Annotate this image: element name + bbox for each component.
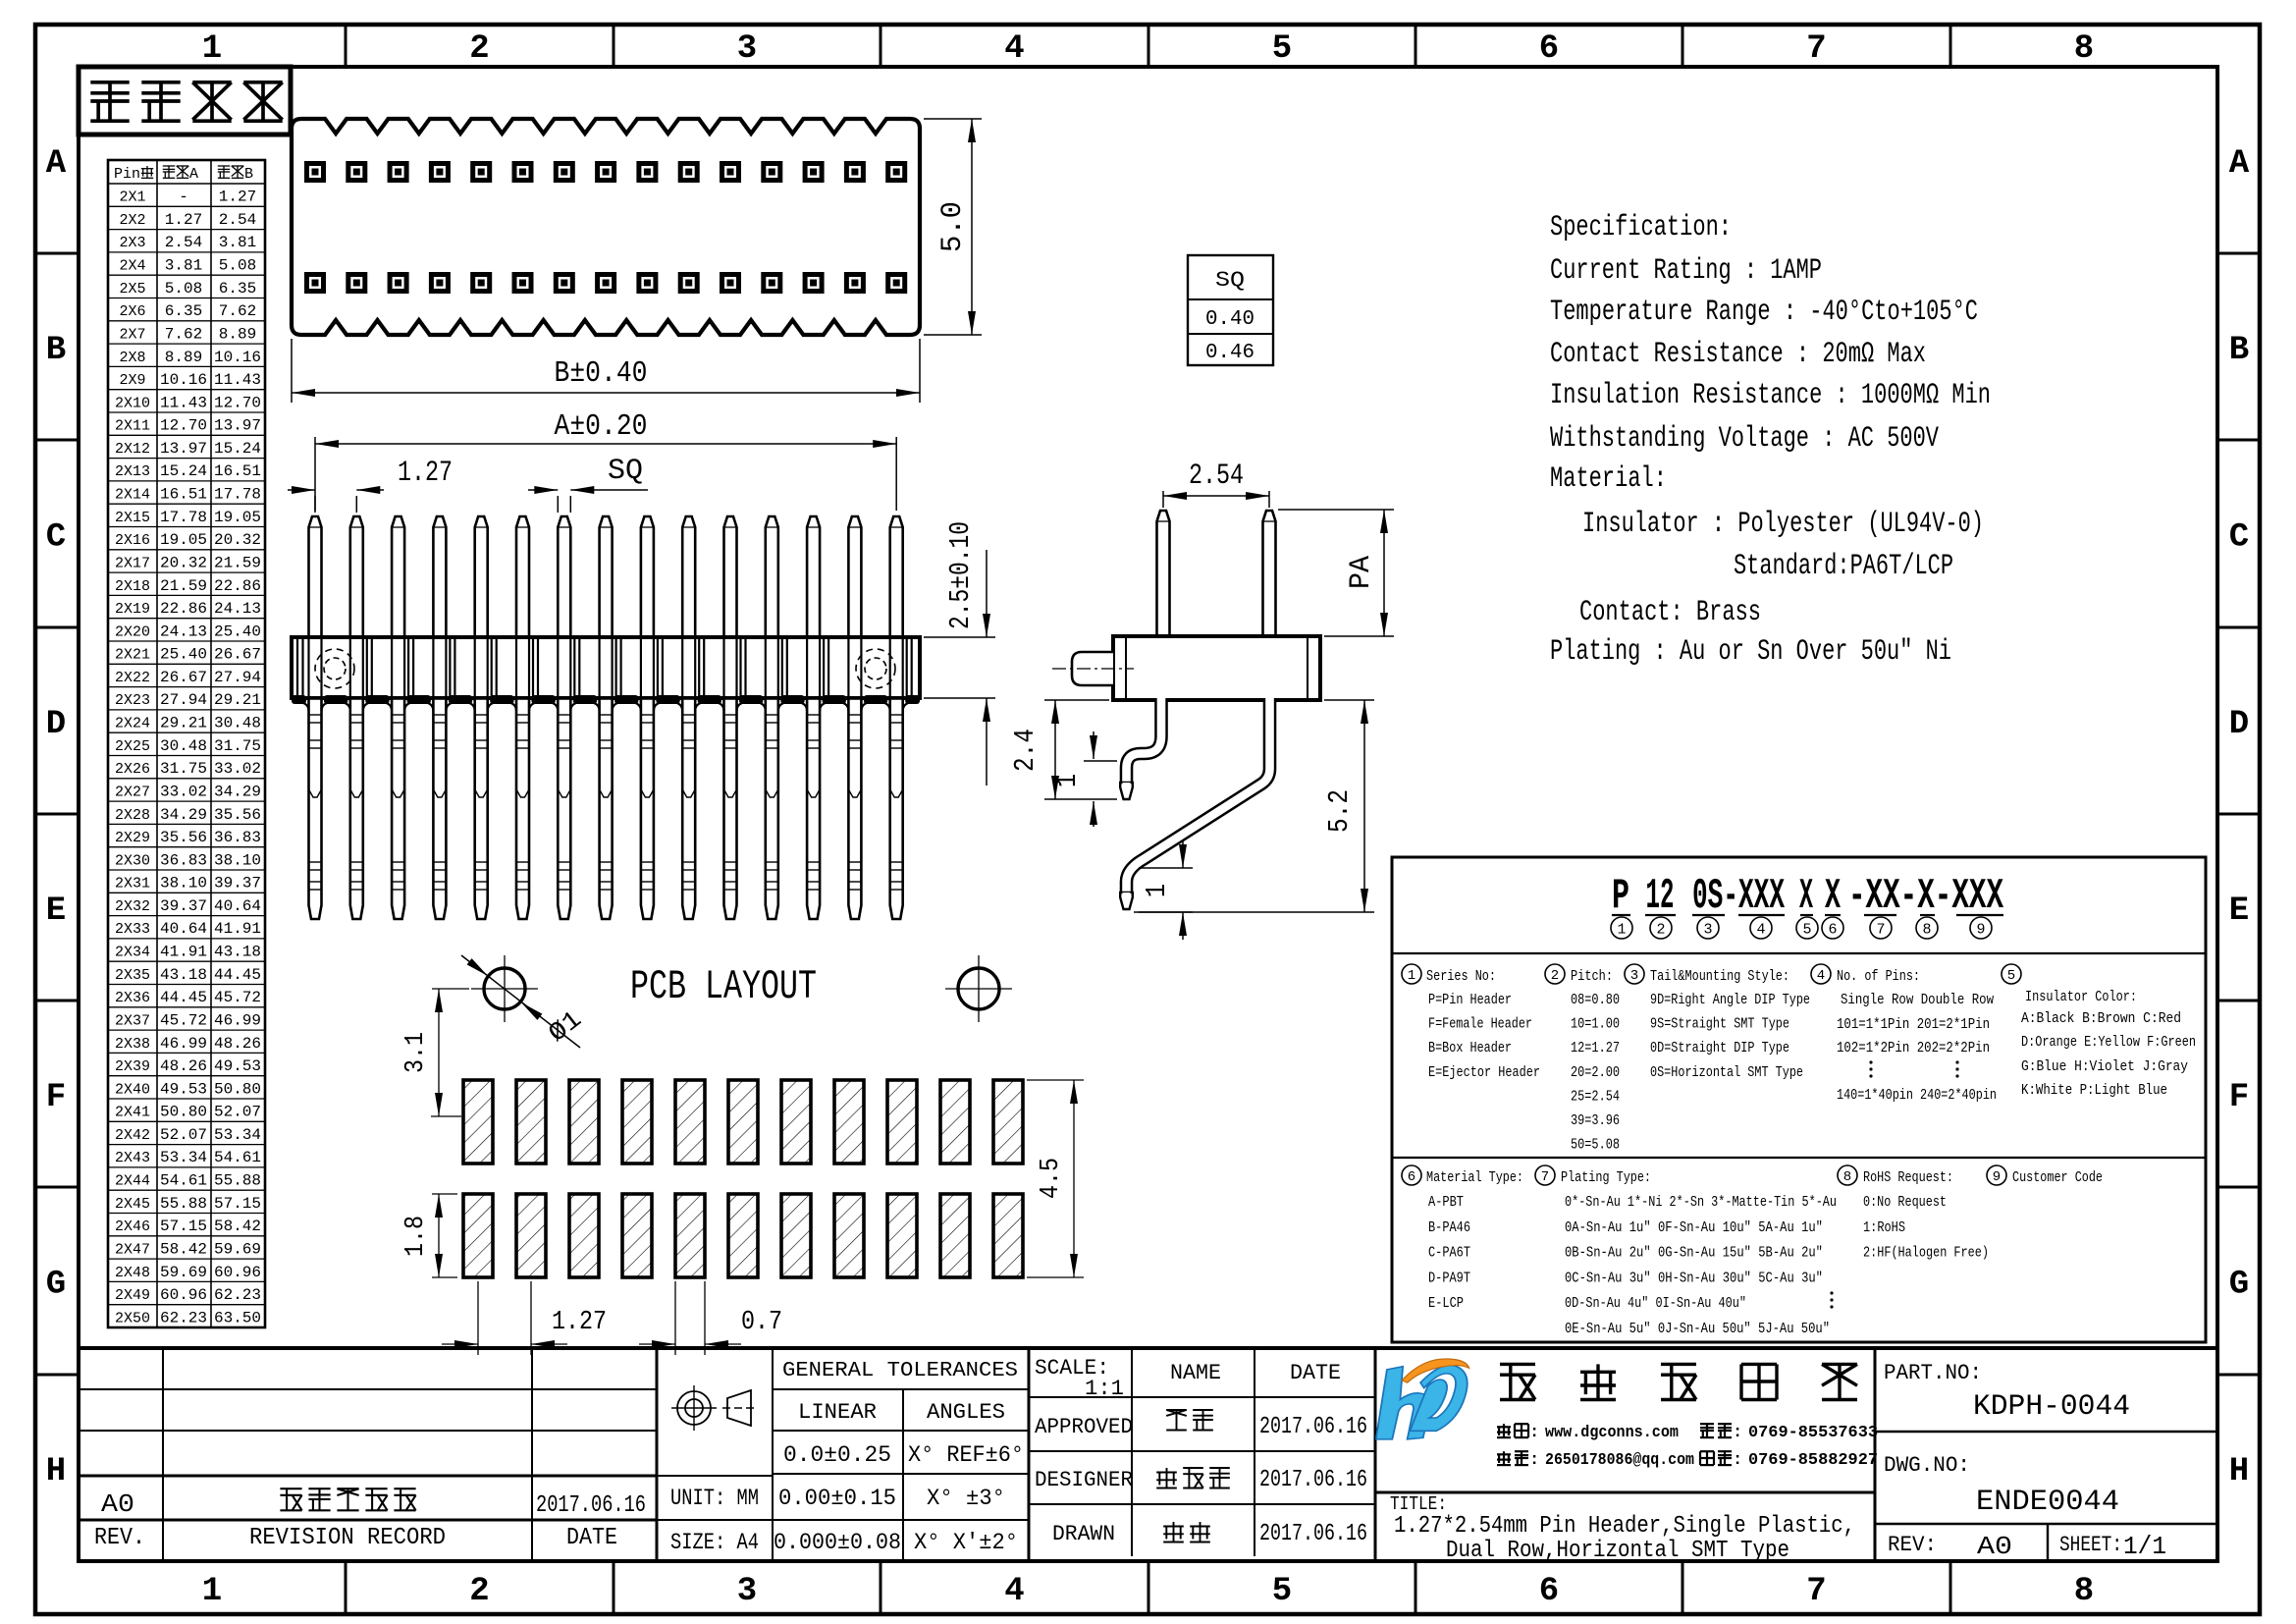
svg-text:1.27: 1.27: [219, 189, 256, 206]
svg-text:36.83: 36.83: [214, 829, 261, 846]
svg-text:55.88: 55.88: [214, 1172, 261, 1190]
svg-text:LINEAR: LINEAR: [798, 1400, 877, 1425]
svg-text::: :: [1529, 1424, 1539, 1442]
svg-text:2X44: 2X44: [115, 1173, 150, 1190]
svg-text:36.83: 36.83: [160, 851, 207, 869]
svg-text:7.62: 7.62: [165, 326, 202, 344]
svg-text:4: 4: [1817, 968, 1825, 984]
svg-text:15.24: 15.24: [214, 440, 261, 458]
svg-text:1.8: 1.8: [401, 1216, 431, 1257]
svg-text:49.53: 49.53: [160, 1080, 207, 1098]
svg-text:30.48: 30.48: [160, 737, 207, 755]
svg-text:2.54: 2.54: [165, 234, 202, 251]
svg-text:DRAWN: DRAWN: [1052, 1522, 1115, 1546]
svg-text:26.67: 26.67: [214, 646, 261, 664]
svg-text:C: C: [46, 519, 66, 557]
svg-text:2.54: 2.54: [1189, 460, 1244, 493]
svg-text:3: 3: [1703, 921, 1712, 938]
svg-text:Dual Row,Horizontal SMT Type: Dual Row,Horizontal SMT Type: [1446, 1538, 1789, 1564]
svg-text:9S=Straight SMT Type: 9S=Straight SMT Type: [1650, 1017, 1789, 1033]
svg-text:2X12: 2X12: [115, 441, 150, 458]
svg-text:F: F: [46, 1079, 66, 1116]
svg-text:2017.06.16: 2017.06.16: [1259, 1414, 1367, 1440]
svg-text:60.96: 60.96: [160, 1286, 207, 1304]
svg-text:2X3: 2X3: [119, 235, 145, 251]
svg-text:60.96: 60.96: [214, 1264, 261, 1281]
svg-text:11.43: 11.43: [160, 394, 207, 411]
svg-text:2X50: 2X50: [115, 1310, 150, 1326]
svg-text:8: 8: [2074, 1573, 2094, 1610]
svg-text:50=5.08: 50=5.08: [1571, 1138, 1620, 1154]
svg-text:3.81: 3.81: [219, 234, 256, 251]
svg-text:26.67: 26.67: [160, 669, 207, 686]
svg-text:13.97: 13.97: [214, 417, 261, 435]
svg-text:8: 8: [1843, 1169, 1851, 1185]
svg-text:20.32: 20.32: [160, 555, 207, 572]
svg-text:-XX-X-XXX: -XX-X-XXX: [1848, 872, 2003, 921]
svg-text:24.13: 24.13: [214, 600, 261, 618]
svg-text:29.21: 29.21: [160, 715, 207, 732]
svg-text:Insulator Color:: Insulator Color:: [2025, 990, 2137, 1005]
svg-text:38.10: 38.10: [214, 851, 261, 869]
svg-text:Specification:: Specification:: [1550, 211, 1732, 244]
svg-text:12.70: 12.70: [214, 394, 261, 411]
svg-text:43.18: 43.18: [160, 966, 207, 984]
svg-text:GENERAL TOLERANCES: GENERAL TOLERANCES: [782, 1360, 1018, 1382]
svg-text:Material:: Material:: [1550, 462, 1667, 496]
svg-text:29.21: 29.21: [214, 691, 261, 709]
svg-text:4: 4: [1004, 30, 1024, 68]
svg-text:8.89: 8.89: [165, 349, 202, 366]
svg-text:58.42: 58.42: [160, 1241, 207, 1259]
svg-text:6.35: 6.35: [219, 280, 256, 298]
svg-text:7: 7: [1806, 30, 1826, 68]
svg-text:2X32: 2X32: [115, 898, 150, 915]
svg-text:55.88: 55.88: [160, 1195, 207, 1213]
svg-text:Customer Code: Customer Code: [2012, 1170, 2103, 1186]
svg-text:NAME: NAME: [1170, 1361, 1221, 1385]
svg-text:PA: PA: [1345, 556, 1378, 589]
svg-text:RoHS Request:: RoHS Request:: [1863, 1170, 1953, 1186]
svg-text:2X49: 2X49: [115, 1287, 150, 1304]
svg-text:7.62: 7.62: [219, 302, 256, 320]
svg-text:Insulation Resistance : 1000MΩ: Insulation Resistance : 1000MΩ Min: [1550, 379, 1991, 412]
svg-text:0*-Sn-Au 1*-Ni 2*-Sn 3*-Matte-: 0*-Sn-Au 1*-Ni 2*-Sn 3*-Matte-Tin 5*-Au: [1565, 1195, 1837, 1211]
svg-text:20.32: 20.32: [214, 531, 261, 549]
svg-text:2X24: 2X24: [115, 716, 150, 732]
svg-text:38.10: 38.10: [160, 875, 207, 893]
svg-text::: :: [1733, 1451, 1742, 1470]
svg-text:2X47: 2X47: [115, 1242, 150, 1259]
svg-text:2X30: 2X30: [115, 852, 150, 869]
svg-text:0S-XXX: 0S-XXX: [1692, 872, 1785, 921]
svg-text:2017.06.16: 2017.06.16: [1259, 1467, 1367, 1493]
svg-text:2X48: 2X48: [115, 1265, 150, 1281]
svg-text:Contact Resistance : 20mΩ Max: Contact Resistance : 20mΩ Max: [1550, 338, 1926, 371]
svg-text:2.54: 2.54: [219, 211, 256, 229]
svg-text:58.42: 58.42: [214, 1218, 261, 1235]
svg-text:E-LCP: E-LCP: [1428, 1296, 1464, 1312]
svg-text:2X42: 2X42: [115, 1127, 150, 1144]
svg-text:KDPH-0044: KDPH-0044: [1973, 1390, 2130, 1424]
svg-text:B: B: [2229, 332, 2249, 369]
svg-text:DATE: DATE: [566, 1525, 617, 1551]
svg-text:DATE: DATE: [1290, 1361, 1341, 1385]
svg-text:40.64: 40.64: [214, 897, 261, 915]
svg-text:2X21: 2X21: [115, 647, 150, 664]
svg-text:ANGLES: ANGLES: [927, 1400, 1005, 1425]
svg-text:2X4: 2X4: [119, 258, 145, 275]
svg-text:REV:: REV:: [1888, 1533, 1937, 1557]
svg-text:2X39: 2X39: [115, 1058, 150, 1075]
svg-text:25=2.54: 25=2.54: [1571, 1089, 1620, 1105]
svg-text:2X45: 2X45: [115, 1196, 150, 1213]
svg-text:F=Female Header: F=Female Header: [1428, 1017, 1532, 1033]
svg-text:46.99: 46.99: [160, 1035, 207, 1053]
svg-text:5.2: 5.2: [1323, 789, 1356, 833]
svg-text:A0: A0: [101, 1489, 134, 1519]
svg-text:22.86: 22.86: [214, 577, 261, 595]
svg-text:Pitch:: Pitch:: [1571, 969, 1613, 985]
svg-text:52.07: 52.07: [160, 1126, 207, 1144]
svg-text:1: 1: [1617, 921, 1626, 938]
svg-text:0.000±0.08: 0.000±0.08: [774, 1530, 901, 1555]
svg-text:5: 5: [1272, 1573, 1292, 1610]
svg-text:X° REF±6°: X° REF±6°: [908, 1442, 1024, 1468]
svg-text:10.16: 10.16: [214, 349, 261, 366]
svg-text:57.15: 57.15: [160, 1218, 207, 1235]
svg-text:22.86: 22.86: [160, 600, 207, 618]
svg-text:2X20: 2X20: [115, 623, 150, 640]
svg-text:www.dgconns.com: www.dgconns.com: [1545, 1424, 1679, 1442]
svg-text:10.16: 10.16: [160, 371, 207, 389]
svg-text:101=1*1Pin 201=2*1Pin: 101=1*1Pin 201=2*1Pin: [1837, 1017, 1990, 1033]
svg-text:C-PA6T: C-PA6T: [1428, 1246, 1470, 1262]
svg-text:Pin: Pin: [114, 166, 140, 183]
svg-text:DWG.NO:: DWG.NO:: [1884, 1453, 1970, 1478]
svg-text:2:HF(Halogen Free): 2:HF(Halogen Free): [1863, 1246, 1989, 1262]
svg-text:Single Row Double Row: Single Row Double Row: [1841, 993, 1994, 1008]
svg-text:B: B: [244, 166, 253, 183]
svg-text:24.13: 24.13: [160, 623, 207, 640]
svg-text:4.5: 4.5: [1037, 1158, 1066, 1199]
svg-text:3.81: 3.81: [165, 257, 202, 275]
svg-text:0A-Sn-Au 1u" 0F-Sn-Au 10u" 5A: 0A-Sn-Au 1u" 0F-Sn-Au 10u" 5A-Au 1u": [1565, 1220, 1823, 1236]
svg-text:2X25: 2X25: [115, 738, 150, 755]
svg-text:2X46: 2X46: [115, 1218, 150, 1235]
svg-text:35.56: 35.56: [160, 829, 207, 846]
svg-text:1: 1: [202, 1573, 222, 1610]
svg-text:X: X: [1799, 872, 1813, 921]
svg-text:2: 2: [469, 1573, 489, 1610]
svg-text:2X11: 2X11: [115, 418, 150, 435]
svg-text:2X17: 2X17: [115, 556, 150, 572]
svg-text:31.75: 31.75: [214, 737, 261, 755]
svg-text:7: 7: [1806, 1573, 1826, 1610]
svg-text:27.94: 27.94: [160, 691, 207, 709]
svg-text:X° ±3°: X° ±3°: [927, 1486, 1005, 1511]
svg-text:2: 2: [1551, 968, 1559, 984]
svg-text:2X18: 2X18: [115, 578, 150, 595]
svg-text:G: G: [46, 1267, 66, 1304]
svg-text:59.69: 59.69: [214, 1241, 261, 1259]
svg-text:E=Ejector Header: E=Ejector Header: [1428, 1065, 1540, 1081]
svg-text:2650178086@qq.com: 2650178086@qq.com: [1545, 1451, 1694, 1470]
svg-text:X: X: [1825, 872, 1841, 921]
svg-text:SQ: SQ: [1215, 268, 1245, 293]
svg-text:B-PA46: B-PA46: [1428, 1220, 1470, 1236]
svg-text:A: A: [189, 166, 198, 183]
svg-text:2X2: 2X2: [119, 212, 145, 229]
svg-text:2X10: 2X10: [115, 395, 150, 411]
svg-text:33.02: 33.02: [160, 784, 207, 801]
svg-text:15.24: 15.24: [160, 462, 207, 480]
svg-text:39.37: 39.37: [214, 875, 261, 893]
svg-text:1: 1: [1051, 774, 1084, 787]
svg-text:2X27: 2X27: [115, 785, 150, 801]
svg-text:A0: A0: [1977, 1532, 2012, 1561]
svg-text:46.99: 46.99: [214, 1012, 261, 1030]
svg-text:G:Blue H:Violet J:Gray: G:Blue H:Violet J:Gray: [2021, 1059, 2188, 1075]
svg-text:16.51: 16.51: [160, 486, 207, 504]
svg-text:30.48: 30.48: [214, 715, 261, 732]
svg-text:5: 5: [1272, 30, 1292, 68]
svg-text:39=3.96: 39=3.96: [1571, 1113, 1620, 1129]
svg-text:2017.06.16: 2017.06.16: [536, 1492, 646, 1519]
svg-text:2X15: 2X15: [115, 510, 150, 526]
svg-text:0E-Sn-Au 5u" 0J-Sn-Au 50u" 5J: 0E-Sn-Au 5u" 0J-Sn-Au 50u" 5J-Au 50u": [1565, 1322, 1830, 1337]
svg-text:48.26: 48.26: [160, 1057, 207, 1075]
svg-text:0S=Horizontal SMT Type: 0S=Horizontal SMT Type: [1650, 1065, 1803, 1081]
svg-text:45.72: 45.72: [214, 989, 261, 1006]
svg-text:1.27: 1.27: [398, 457, 453, 490]
svg-text:2017.06.16: 2017.06.16: [1259, 1521, 1367, 1547]
svg-text:2X26: 2X26: [115, 761, 150, 778]
svg-text:UNIT: MM: UNIT: MM: [670, 1486, 759, 1511]
svg-text:17.78: 17.78: [160, 509, 207, 526]
svg-text:6: 6: [1539, 1573, 1559, 1610]
svg-text:2X38: 2X38: [115, 1036, 150, 1053]
svg-text:1.27*2.54mm Pin Header,Single: 1.27*2.54mm Pin Header,Single Plastic,: [1394, 1513, 1855, 1540]
svg-text:33.02: 33.02: [214, 760, 261, 778]
svg-text:2.5±0.10: 2.5±0.10: [944, 521, 977, 629]
svg-text:4: 4: [1756, 921, 1765, 938]
svg-text:19.05: 19.05: [160, 531, 207, 549]
svg-text:2X16: 2X16: [115, 532, 150, 549]
svg-text:P: P: [1612, 872, 1629, 921]
svg-text:2: 2: [469, 30, 489, 68]
svg-text:102=1*2Pin 202=2*2Pin: 102=1*2Pin 202=2*2Pin: [1837, 1041, 1990, 1056]
svg-text:54.61: 54.61: [160, 1172, 207, 1190]
svg-text:2: 2: [1656, 921, 1665, 938]
svg-text:2X41: 2X41: [115, 1105, 150, 1121]
svg-text:Plating : Au or Sn Over 50u" N: Plating : Au or Sn Over 50u" Ni: [1550, 635, 1951, 669]
svg-text:Insulator : Polyester (UL94V-0: Insulator : Polyester (UL94V-0): [1582, 508, 1984, 541]
svg-text:2X22: 2X22: [115, 670, 150, 686]
svg-text:19.05: 19.05: [214, 509, 261, 526]
svg-text:5.08: 5.08: [165, 280, 202, 298]
svg-text:A: A: [2229, 145, 2250, 183]
svg-text:Plating Type:: Plating Type:: [1561, 1170, 1651, 1186]
svg-text:41.91: 41.91: [160, 944, 207, 961]
svg-text:39.37: 39.37: [160, 897, 207, 915]
svg-text:44.45: 44.45: [214, 966, 261, 984]
svg-text:0.7: 0.7: [741, 1308, 782, 1337]
svg-text::: :: [1733, 1424, 1742, 1442]
svg-text:27.94: 27.94: [214, 669, 261, 686]
svg-text:08=0.80: 08=0.80: [1571, 993, 1620, 1008]
svg-text:DESIGNER: DESIGNER: [1035, 1468, 1133, 1492]
svg-text:63.50: 63.50: [214, 1309, 261, 1326]
svg-text:53.34: 53.34: [160, 1149, 207, 1166]
svg-text:TITLE:: TITLE:: [1390, 1493, 1447, 1515]
svg-text:35.56: 35.56: [214, 806, 261, 824]
svg-text:G: G: [2229, 1267, 2249, 1304]
svg-text:2X34: 2X34: [115, 945, 150, 961]
svg-text:Current Rating : 1AMP: Current Rating : 1AMP: [1550, 254, 1822, 288]
svg-text::: :: [1529, 1451, 1539, 1470]
svg-text:B: B: [46, 332, 66, 369]
svg-text:2.4: 2.4: [1009, 729, 1041, 772]
svg-text:3.1: 3.1: [401, 1032, 431, 1073]
svg-text:Standard:PA6T/LCP: Standard:PA6T/LCP: [1734, 550, 1953, 583]
svg-text:0D=Straight DIP Type: 0D=Straight DIP Type: [1650, 1041, 1789, 1056]
svg-text:34.29: 34.29: [160, 806, 207, 824]
svg-text:1.27: 1.27: [552, 1308, 607, 1337]
svg-text:12=1.27: 12=1.27: [1571, 1041, 1620, 1056]
svg-text:2X7: 2X7: [119, 327, 145, 344]
svg-text:2X5: 2X5: [119, 281, 145, 298]
svg-text:0D-Sn-Au 4u" 0I-Sn-Au 40u": 0D-Sn-Au 4u" 0I-Sn-Au 40u": [1565, 1296, 1746, 1312]
svg-text:2X13: 2X13: [115, 463, 150, 480]
svg-text:No. of Pins:: No. of Pins:: [1837, 969, 1920, 985]
svg-text:D: D: [2229, 706, 2249, 743]
svg-text:0.0±0.25: 0.0±0.25: [783, 1442, 891, 1468]
svg-text:B=Box Header: B=Box Header: [1428, 1041, 1512, 1056]
svg-text:2X19: 2X19: [115, 601, 150, 618]
svg-text:0769-85882927: 0769-85882927: [1748, 1451, 1878, 1470]
svg-text:41.91: 41.91: [214, 920, 261, 938]
svg-text:2X36: 2X36: [115, 990, 150, 1006]
svg-text:40.64: 40.64: [160, 920, 207, 938]
svg-text:REV.: REV.: [94, 1525, 145, 1551]
svg-text:2X6: 2X6: [119, 303, 145, 320]
svg-text:16.51: 16.51: [214, 462, 261, 480]
svg-text:50.80: 50.80: [214, 1080, 261, 1098]
svg-text:D:Orange E:Yellow F:Green: D:Orange E:Yellow F:Green: [2021, 1035, 2196, 1051]
svg-text:31.75: 31.75: [160, 760, 207, 778]
svg-text:11.43: 11.43: [214, 371, 261, 389]
svg-text:2X23: 2X23: [115, 692, 150, 709]
svg-text:APPROVED: APPROVED: [1035, 1415, 1133, 1439]
svg-text:53.34: 53.34: [214, 1126, 261, 1144]
svg-text:2X29: 2X29: [115, 830, 150, 846]
svg-text:0C-Sn-Au 3u" 0H-Sn-Au 30u" 5C: 0C-Sn-Au 3u" 0H-Sn-Au 30u" 5C-Au 3u": [1565, 1271, 1823, 1286]
svg-text:2X8: 2X8: [119, 350, 145, 366]
svg-text:ENDE0044: ENDE0044: [1976, 1486, 2119, 1519]
svg-text:1:RoHS: 1:RoHS: [1863, 1220, 1905, 1236]
svg-text:7: 7: [1541, 1169, 1549, 1185]
svg-text:6: 6: [1539, 30, 1559, 68]
svg-text:45.72: 45.72: [160, 1012, 207, 1030]
svg-text:6.35: 6.35: [165, 302, 202, 320]
svg-text:9: 9: [1993, 1169, 2001, 1185]
svg-text:3: 3: [737, 1573, 757, 1610]
svg-text:X° X'±2°: X° X'±2°: [914, 1530, 1018, 1555]
svg-text:Tail&Mounting Style:: Tail&Mounting Style:: [1650, 969, 1789, 985]
svg-text:H: H: [2229, 1453, 2249, 1490]
svg-text:B±0.40: B±0.40: [555, 356, 648, 391]
svg-text:2X33: 2X33: [115, 921, 150, 938]
svg-text:50.80: 50.80: [160, 1104, 207, 1121]
svg-text:34.29: 34.29: [214, 784, 261, 801]
svg-text:D-PA9T: D-PA9T: [1428, 1271, 1470, 1286]
svg-text:13.97: 13.97: [160, 440, 207, 458]
svg-text:17.78: 17.78: [214, 486, 261, 504]
svg-text:SIZE: A4: SIZE: A4: [670, 1530, 759, 1555]
svg-text:3: 3: [1630, 968, 1638, 984]
svg-text:8: 8: [1922, 921, 1931, 938]
svg-text:A:Black B:Brown C:Red: A:Black B:Brown C:Red: [2021, 1011, 2181, 1027]
svg-text:A-PBT: A-PBT: [1428, 1195, 1464, 1211]
svg-text:49.53: 49.53: [214, 1057, 261, 1075]
svg-text:E: E: [46, 893, 66, 930]
svg-text:1/1: 1/1: [2123, 1532, 2166, 1561]
svg-text:0769-85537633: 0769-85537633: [1748, 1424, 1878, 1442]
svg-text:SHEET:: SHEET:: [2059, 1533, 2122, 1557]
svg-text:2X14: 2X14: [115, 487, 150, 504]
svg-text:1: 1: [1141, 884, 1173, 897]
svg-text:REVISION RECORD: REVISION RECORD: [249, 1525, 446, 1551]
svg-text:25.40: 25.40: [160, 646, 207, 664]
svg-text:9: 9: [1976, 921, 1985, 938]
svg-text:D: D: [46, 706, 66, 743]
svg-text:PART.NO:: PART.NO:: [1884, 1361, 1982, 1385]
svg-text:6: 6: [1828, 921, 1837, 938]
svg-text:P=Pin Header: P=Pin Header: [1428, 993, 1512, 1008]
svg-text:57.15: 57.15: [214, 1195, 261, 1213]
svg-text:5.0: 5.0: [936, 201, 970, 252]
svg-text:Contact: Brass: Contact: Brass: [1579, 596, 1761, 629]
svg-text:0.40: 0.40: [1205, 308, 1255, 331]
svg-text:0:No Request: 0:No Request: [1863, 1195, 1947, 1211]
svg-text:Series No:: Series No:: [1426, 969, 1496, 985]
svg-text:PCB LAYOUT: PCB LAYOUT: [630, 963, 817, 1010]
svg-text:C: C: [2229, 519, 2249, 557]
svg-text:62.23: 62.23: [214, 1286, 261, 1304]
svg-text:0.46: 0.46: [1205, 342, 1255, 364]
svg-text:54.61: 54.61: [214, 1149, 261, 1166]
svg-text:1: 1: [202, 30, 222, 68]
svg-text:10=1.00: 10=1.00: [1571, 1017, 1620, 1033]
svg-text:K:White P:Light Blue: K:White P:Light Blue: [2021, 1083, 2167, 1099]
svg-text:44.45: 44.45: [160, 989, 207, 1006]
svg-text:-: -: [179, 189, 188, 206]
svg-text:A: A: [46, 145, 67, 183]
svg-text:2X40: 2X40: [115, 1081, 150, 1098]
svg-text:8.89: 8.89: [219, 326, 256, 344]
svg-text:0B-Sn-Au 2u" 0G-Sn-Au 15u" 5B: 0B-Sn-Au 2u" 0G-Sn-Au 15u" 5B-Au 2u": [1565, 1246, 1823, 1262]
svg-text:5.08: 5.08: [219, 257, 256, 275]
svg-text:21.59: 21.59: [214, 555, 261, 572]
svg-text:43.18: 43.18: [214, 944, 261, 961]
svg-text:F: F: [2229, 1079, 2249, 1116]
svg-text:1:1: 1:1: [1085, 1377, 1124, 1401]
svg-text:2X28: 2X28: [115, 807, 150, 824]
svg-text:140=1*40pin 240=2*40pin: 140=1*40pin 240=2*40pin: [1837, 1088, 1997, 1104]
svg-text:48.26: 48.26: [214, 1035, 261, 1053]
svg-text:7: 7: [1876, 921, 1885, 938]
